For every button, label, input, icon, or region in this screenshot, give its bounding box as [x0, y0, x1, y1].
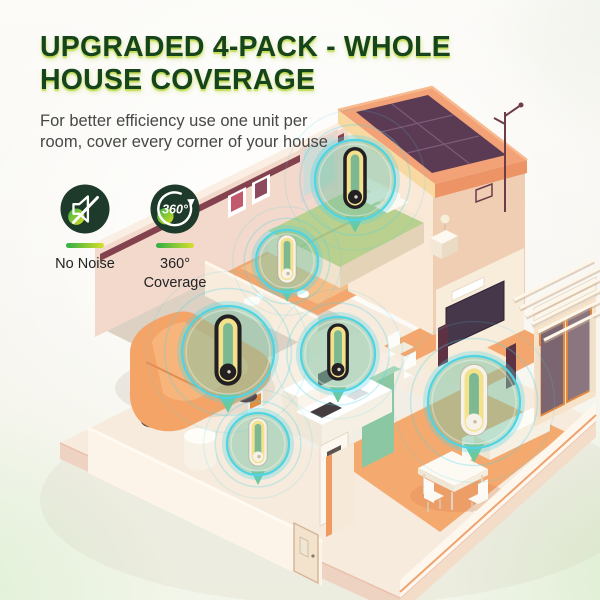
title-line-1: UPGRADED 4-PACK - WHOLE: [40, 31, 451, 63]
page-title: UPGRADED 4-PACK - WHOLEHOUSE COVERAGE: [40, 31, 480, 98]
badge-360-text: 360°: [162, 202, 189, 216]
product-infographic: UPGRADED 4-PACK - WHOLEHOUSE COVERAGE Fo…: [0, 0, 600, 600]
subtitle: For better efficiency use one unit perro…: [40, 111, 480, 155]
feature-no-noise: No Noise: [52, 184, 118, 293]
feature-badges: No Noise 360° 360°Coverage: [52, 184, 208, 293]
feature-360-coverage: 360° 360°Coverage: [142, 184, 208, 293]
subtitle-line-2: room, cover every corner of your house: [40, 133, 328, 151]
feature-label-no-noise: No Noise: [55, 255, 115, 274]
360-coverage-icon: 360°: [150, 184, 200, 234]
title-line-2: HOUSE COVERAGE: [40, 64, 315, 96]
header: UPGRADED 4-PACK - WHOLEHOUSE COVERAGE Fo…: [40, 31, 480, 154]
subtitle-line-1: For better efficiency use one unit per: [40, 112, 308, 130]
feature-label-coverage: 360°Coverage: [144, 255, 207, 293]
gradient-underline: [66, 243, 104, 248]
no-noise-icon: [60, 184, 110, 234]
gradient-underline: [156, 243, 194, 248]
